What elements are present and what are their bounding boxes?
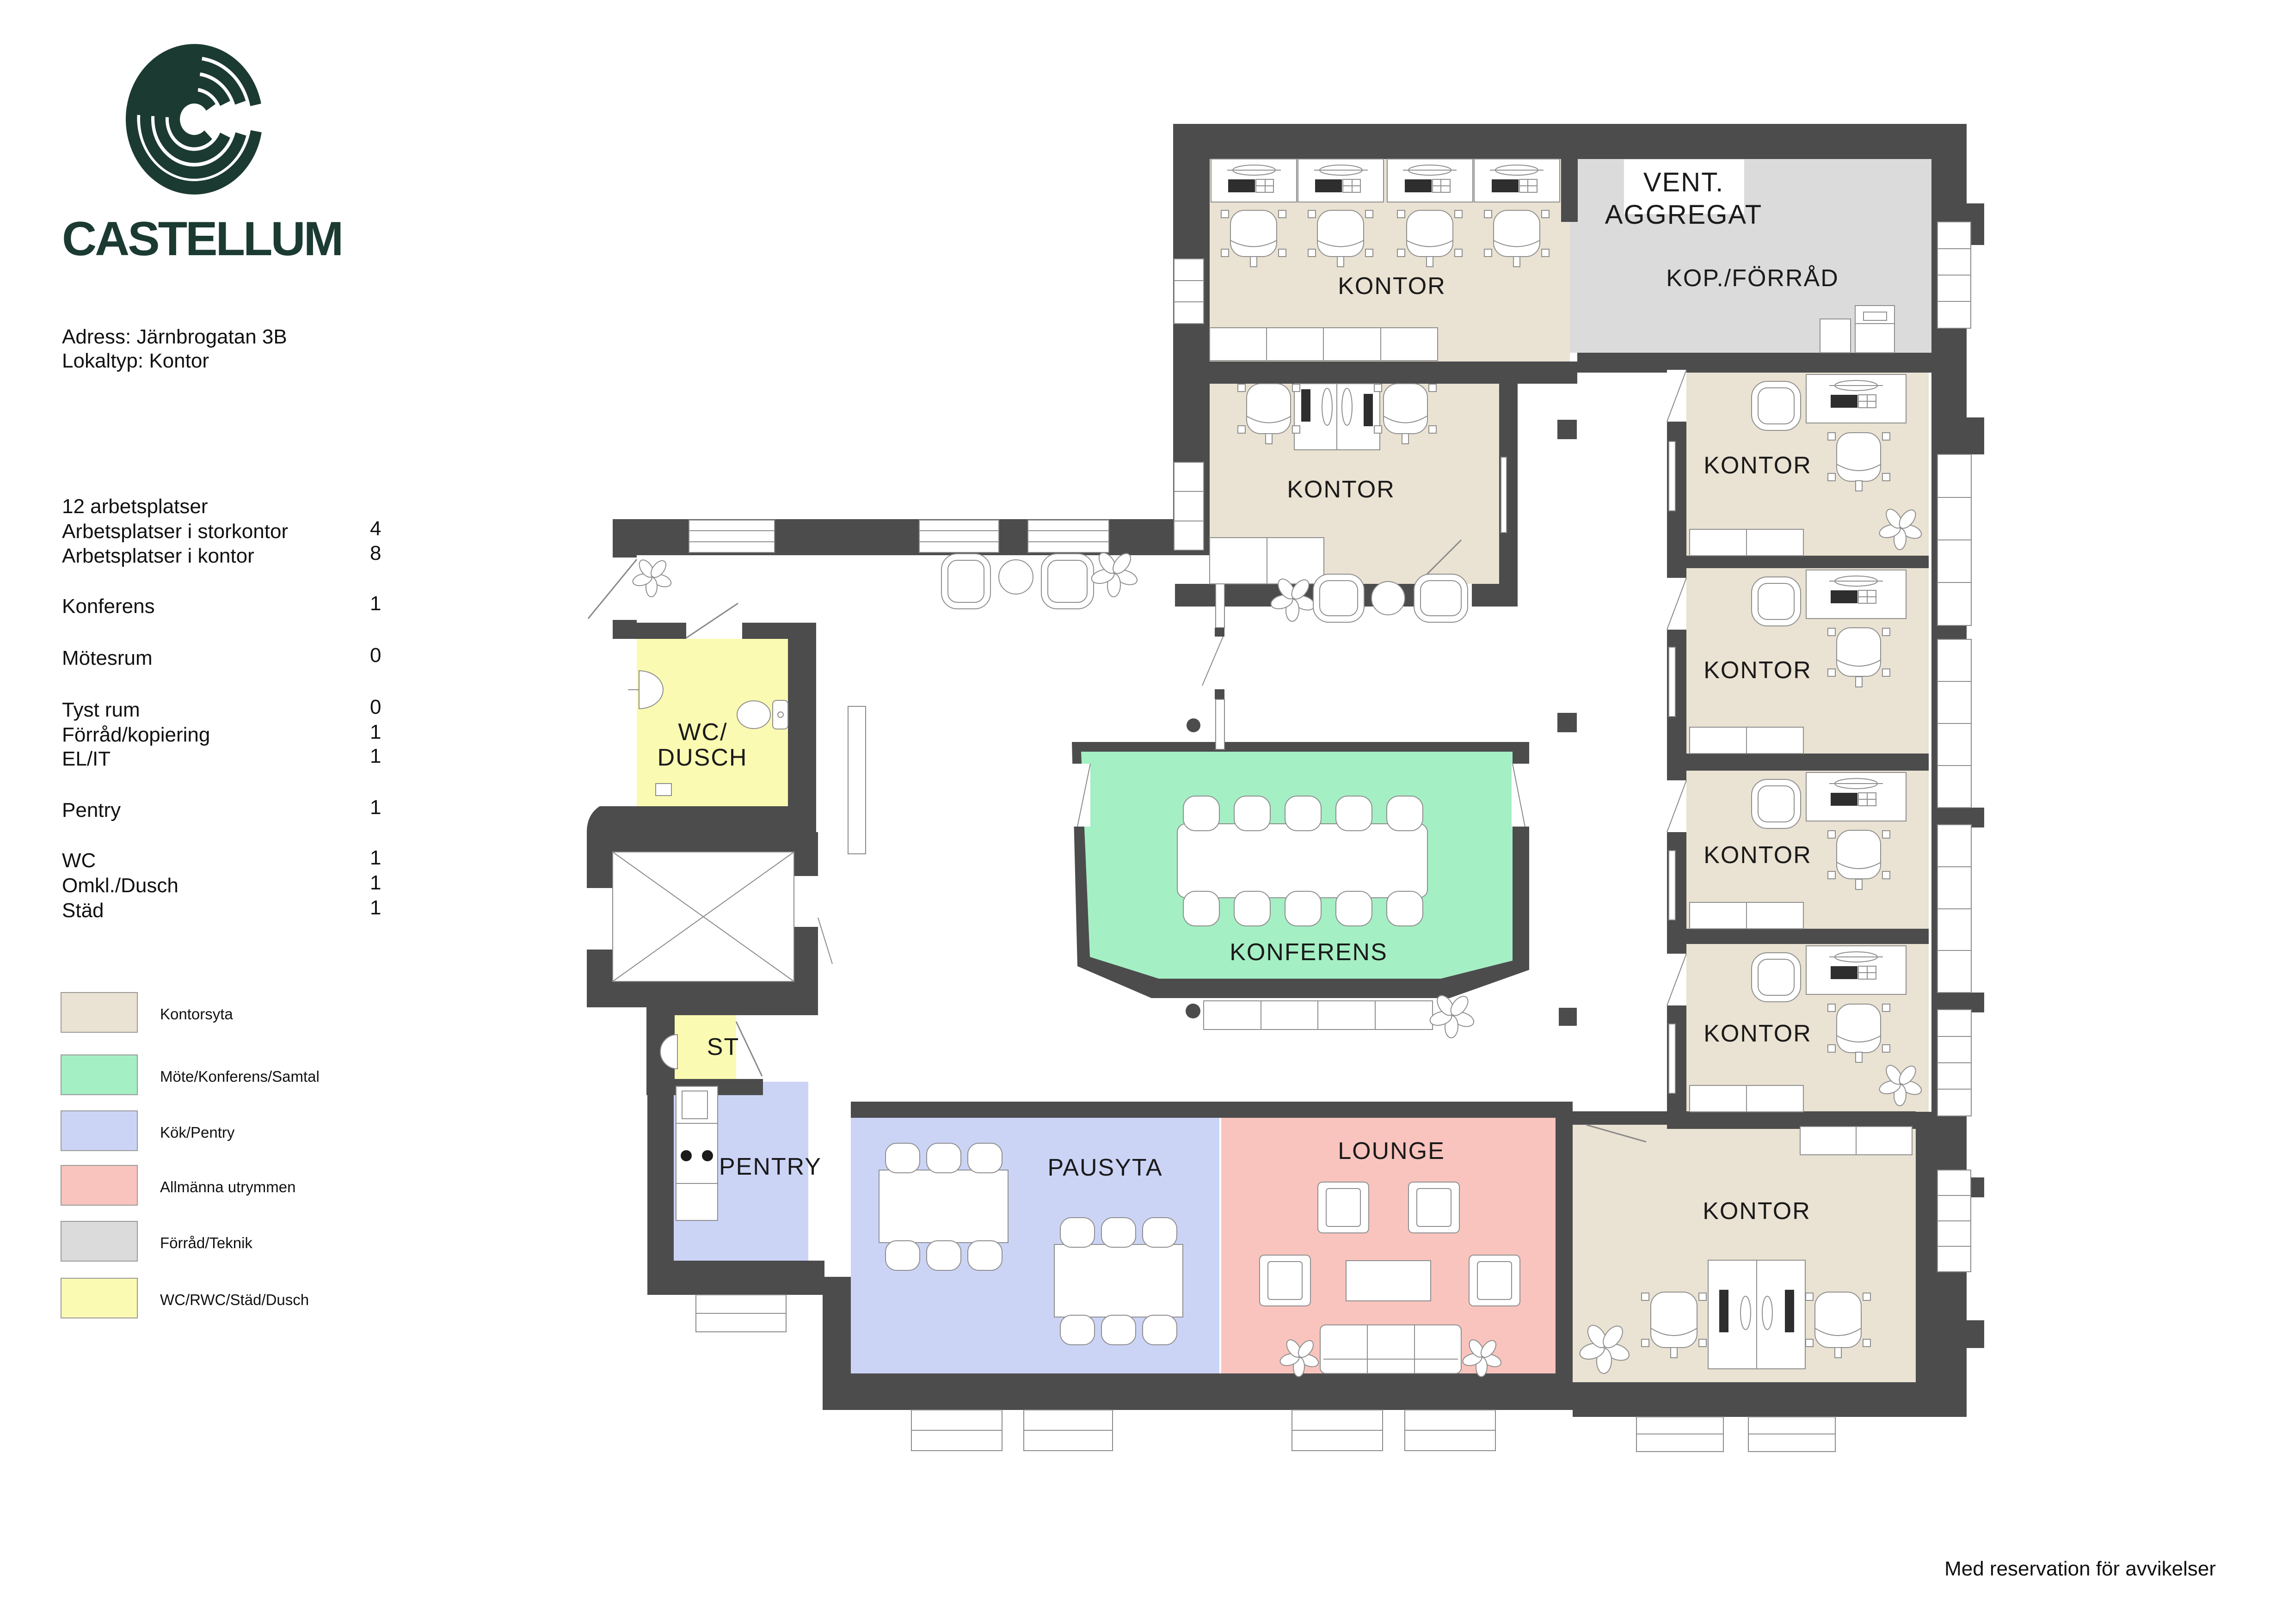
svg-text:Omkl./Dusch: Omkl./Dusch xyxy=(62,874,178,897)
svg-text:KONTOR: KONTOR xyxy=(1287,476,1395,503)
svg-text:1: 1 xyxy=(370,896,381,919)
svg-text:Kök/Pentry: Kök/Pentry xyxy=(160,1124,235,1141)
svg-text:AGGREGAT: AGGREGAT xyxy=(1605,200,1762,230)
svg-text:ST: ST xyxy=(707,1034,739,1060)
svg-text:Förråd/kopiering: Förråd/kopiering xyxy=(62,723,210,746)
svg-text:DUSCH: DUSCH xyxy=(658,744,748,771)
svg-text:KONTOR: KONTOR xyxy=(1704,452,1812,479)
svg-text:1: 1 xyxy=(370,745,381,767)
svg-text:VENT.: VENT. xyxy=(1643,167,1724,197)
svg-text:Arbetsplatser i kontor: Arbetsplatser i kontor xyxy=(62,545,254,567)
svg-text:1: 1 xyxy=(370,871,381,894)
svg-text:EL/IT: EL/IT xyxy=(62,748,111,770)
svg-text:1: 1 xyxy=(370,796,381,819)
svg-text:1: 1 xyxy=(370,846,381,869)
svg-text:WC: WC xyxy=(62,849,96,872)
svg-text:4: 4 xyxy=(370,517,381,540)
svg-text:8: 8 xyxy=(370,542,381,564)
svg-text:KONTOR: KONTOR xyxy=(1704,1020,1812,1047)
svg-text:12 arbetsplatser: 12 arbetsplatser xyxy=(62,495,208,518)
svg-text:Kontorsyta: Kontorsyta xyxy=(160,1005,233,1023)
svg-text:1: 1 xyxy=(370,592,381,615)
svg-text:WC/RWC/Städ/Dusch: WC/RWC/Städ/Dusch xyxy=(160,1291,309,1308)
svg-text:Tyst rum: Tyst rum xyxy=(62,699,140,721)
svg-text:Pentry: Pentry xyxy=(62,799,121,821)
svg-text:LOUNGE: LOUNGE xyxy=(1338,1138,1445,1164)
svg-text:KONTOR: KONTOR xyxy=(1703,1198,1811,1225)
svg-text:Städ: Städ xyxy=(62,899,104,922)
svg-text:0: 0 xyxy=(370,644,381,667)
svg-text:1: 1 xyxy=(370,721,381,743)
svg-text:Arbetsplatser i storkontor: Arbetsplatser i storkontor xyxy=(62,520,288,543)
svg-text:KONTOR: KONTOR xyxy=(1704,657,1812,684)
svg-text:KONFERENS: KONFERENS xyxy=(1230,939,1388,966)
svg-text:Konferens: Konferens xyxy=(62,595,155,618)
svg-text:Adress: Järnbrogatan 3B: Adress: Järnbrogatan 3B xyxy=(62,325,287,348)
svg-text:KONTOR: KONTOR xyxy=(1704,842,1812,869)
svg-text:WC/: WC/ xyxy=(678,719,727,746)
svg-text:Mötesrum: Mötesrum xyxy=(62,647,153,669)
svg-text:0: 0 xyxy=(370,696,381,718)
svg-text:Med reservation för avvikelser: Med reservation för avvikelser xyxy=(1944,1557,2216,1580)
svg-text:PAUSYTA: PAUSYTA xyxy=(1047,1154,1162,1181)
svg-text:KOP./FÖRRÅD: KOP./FÖRRÅD xyxy=(1666,265,1839,292)
svg-text:Förråd/Teknik: Förråd/Teknik xyxy=(160,1234,252,1251)
svg-text:Lokaltyp: Kontor: Lokaltyp: Kontor xyxy=(62,349,209,372)
svg-text:CASTELLUM: CASTELLUM xyxy=(62,212,342,266)
svg-text:Möte/Konferens/Samtal: Möte/Konferens/Samtal xyxy=(160,1068,320,1085)
svg-text:KONTOR: KONTOR xyxy=(1338,273,1446,300)
svg-text:Allmänna utrymmen: Allmänna utrymmen xyxy=(160,1178,295,1195)
svg-text:PENTRY: PENTRY xyxy=(719,1153,822,1180)
